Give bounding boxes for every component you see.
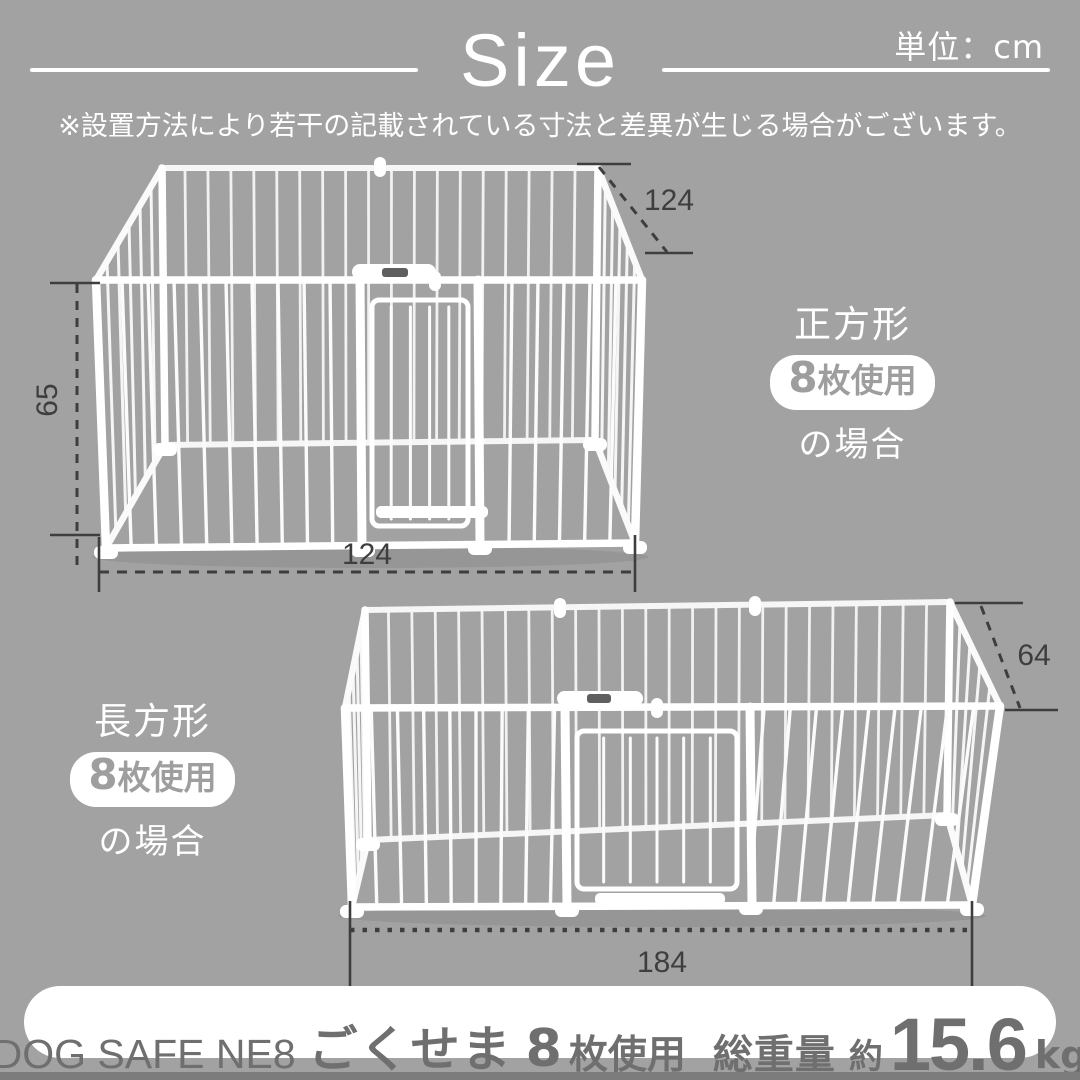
rect-shape-label: 長方形 bbox=[40, 700, 265, 744]
square-config-caption: 正方形 8枚使用 の場合 bbox=[745, 303, 960, 466]
size-infographic: Size 単位：cm ※設置方法により若干の記載されている寸法と差異が生じる場合… bbox=[0, 0, 1080, 1080]
square-case-label: の場合 bbox=[745, 417, 960, 466]
square-panel-count: 8 bbox=[788, 353, 817, 402]
series-name: ごくせま bbox=[309, 1010, 513, 1080]
rect-pen-depth-value: 64 bbox=[1017, 639, 1050, 672]
rect-pen-wireframe bbox=[338, 596, 1000, 927]
rect-pen-width-value: 184 bbox=[637, 946, 687, 979]
footer-panel-count: 8 bbox=[526, 1019, 562, 1079]
weight-value: 15.6 bbox=[890, 1002, 1026, 1080]
rect-panel-count-badge: 8枚使用 bbox=[70, 752, 234, 807]
bottom-edge-strip bbox=[0, 1072, 1080, 1080]
title-rule-right bbox=[662, 68, 1050, 72]
product-name: DOG SAFE NE8 bbox=[0, 1031, 296, 1078]
weight-unit: kg bbox=[1035, 1033, 1080, 1077]
rect-panel-count: 8 bbox=[88, 750, 117, 799]
square-shape-label: 正方形 bbox=[745, 303, 960, 347]
rect-case-label: の場合 bbox=[40, 814, 265, 863]
rect-config-caption: 長方形 8枚使用 の場合 bbox=[40, 700, 265, 863]
rect-panel-count-suffix: 枚使用 bbox=[118, 758, 217, 797]
product-summary-bar: DOG SAFE NE8 ごくせま 8 枚使用 総重量 約 15.6 kg bbox=[24, 986, 1056, 1058]
square-pen-wireframe bbox=[92, 157, 649, 568]
square-panel-count-badge: 8枚使用 bbox=[770, 355, 934, 410]
rect-pen-illustration: 64 184 bbox=[310, 565, 1080, 995]
square-pen-illustration: 124 65 124 bbox=[30, 150, 720, 620]
unit-label: 単位：cm bbox=[894, 22, 1044, 68]
square-pen-depth-value: 124 bbox=[644, 184, 694, 217]
square-pen-height-value: 65 bbox=[31, 383, 64, 416]
dimension-disclaimer-note: ※設置方法により若干の記載されている寸法と差異が生じる場合がございます。 bbox=[0, 104, 1080, 143]
weight-approx-prefix: 約 bbox=[849, 1029, 883, 1078]
square-panel-count-suffix: 枚使用 bbox=[818, 361, 917, 400]
